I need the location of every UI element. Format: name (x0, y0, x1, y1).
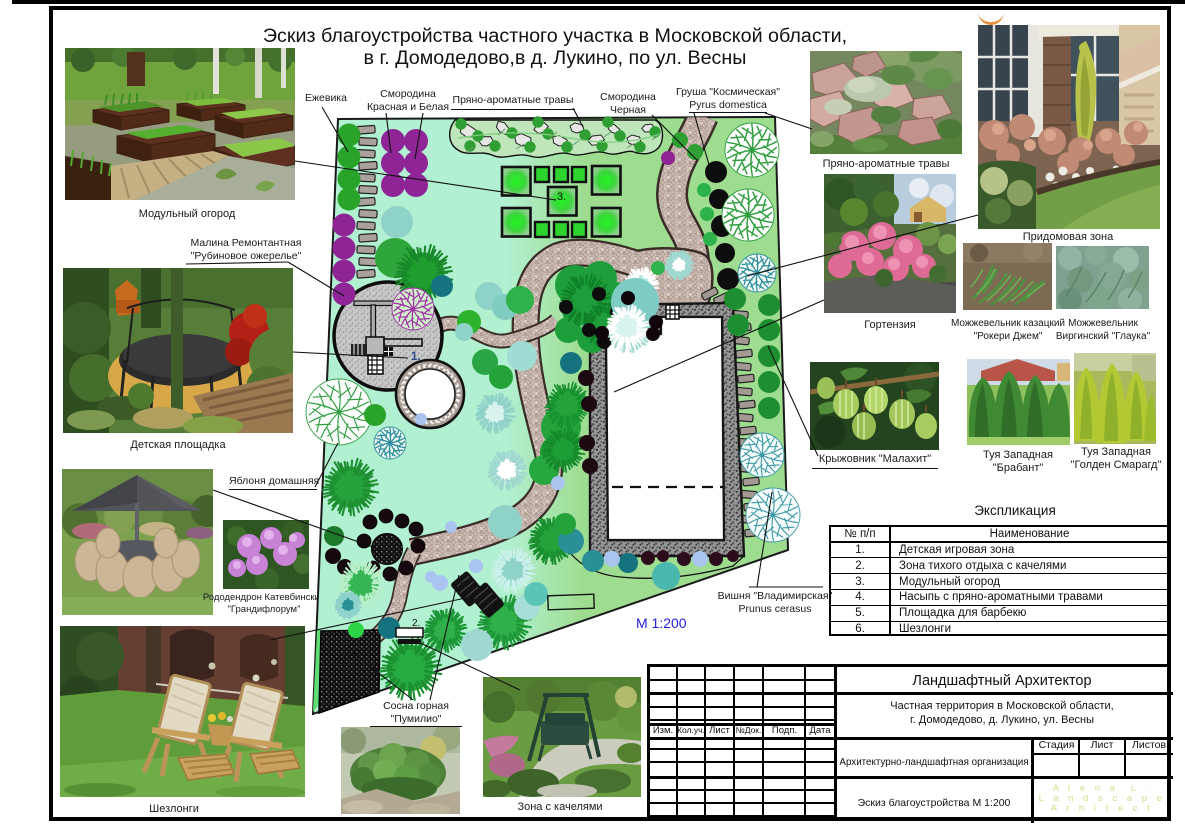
svg-text:3.: 3. (557, 191, 566, 203)
svg-text:4.: 4. (459, 581, 466, 590)
svg-text:2.: 2. (412, 618, 420, 629)
